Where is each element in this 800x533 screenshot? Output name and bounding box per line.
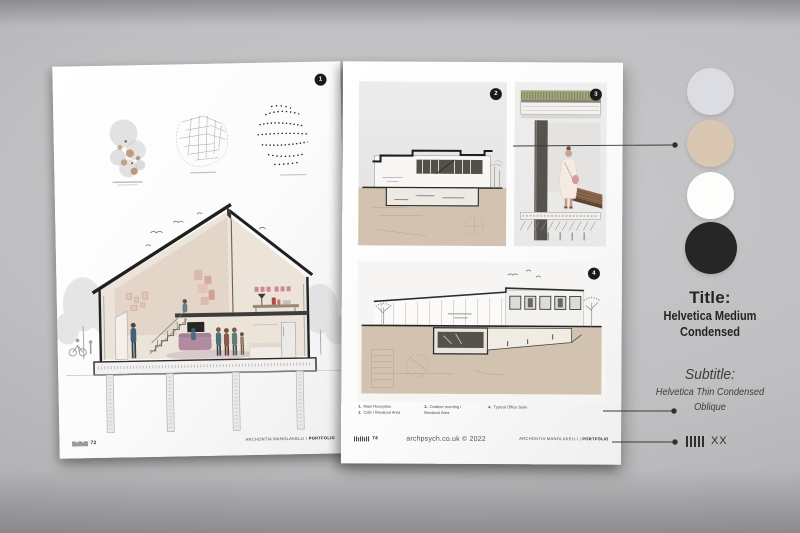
subtitle-spec-line1: Helvetica Thin Condensed xyxy=(644,385,776,400)
legend-column: 3.Outdoor meeting / Breakout Area xyxy=(424,405,465,417)
credit-divider: | xyxy=(579,437,580,441)
left-page-artwork xyxy=(52,61,347,458)
figure-badge-3-number: 3 xyxy=(594,92,597,98)
building-section-svg xyxy=(358,81,507,246)
drawing-legend: 1.Main Reception 2.Cafe / Breakout Area … xyxy=(358,404,547,423)
dot-map-diagram xyxy=(257,105,308,176)
figure-badge-3: 3 xyxy=(590,89,602,101)
credit-name: ARCHONTIA MANOLAKELLI xyxy=(519,437,578,441)
title-spec-heading: Title: xyxy=(645,288,775,308)
tally-bars-icon xyxy=(686,436,704,447)
credit-portfolio: PORTFOLIO xyxy=(308,436,334,441)
subtitle-spec-heading: Subtitle: xyxy=(641,366,779,383)
title-spec-block: Title: Helvetica Medium Condensed xyxy=(645,288,775,341)
right-page-credit: ARCHONTIA MANOLAKELLI | PORTFOLIO xyxy=(519,437,608,442)
panel-building-section: 2 xyxy=(358,81,507,246)
left-page-credit: ARCHONTIA MANOLAKELLI | PORTFOLIO xyxy=(245,436,334,442)
barcode-icon xyxy=(72,441,87,446)
color-swatch-lavender xyxy=(687,68,734,115)
house-section-drawing xyxy=(53,202,348,434)
right-page: 2 xyxy=(341,61,623,464)
page-marker-label: XX xyxy=(711,435,728,447)
balcony-detail-svg xyxy=(514,82,607,246)
right-page-footer: 74 archpsych.co.uk © 2022 ARCHONTIA MANO… xyxy=(341,435,621,442)
credit-name: ARCHONTIA MANOLAKELLI xyxy=(245,437,304,442)
color-swatch-white xyxy=(687,172,734,219)
figure-badge-2: 2 xyxy=(490,88,502,100)
bubble-map-diagram xyxy=(109,119,146,186)
title-spec-line1: Helvetica Medium xyxy=(653,308,767,324)
legend-item-4: 4.Typical Office Suite xyxy=(488,405,527,411)
subtitle-spec-line2: Oblique xyxy=(644,400,776,415)
credit-divider: | xyxy=(305,437,306,441)
subtitle-spec-block: Subtitle: Helvetica Thin Condensed Obliq… xyxy=(635,366,785,415)
figure-badge-1-number: 1 xyxy=(319,77,322,83)
legend-column: 1.Main Reception 2.Cafe / Breakout Area xyxy=(358,404,400,416)
panel-long-section: 4 xyxy=(357,261,606,402)
credit-portfolio: PORTFOLIO xyxy=(582,437,608,441)
title-spec-line2: Condensed xyxy=(653,324,767,340)
page-marker: XX xyxy=(686,435,728,447)
figure-badge-4: 4 xyxy=(588,268,600,280)
left-page-number: 72 xyxy=(90,440,96,446)
panel-balcony-detail: 3 xyxy=(514,82,607,246)
street-map-diagram xyxy=(176,115,228,173)
left-page: 1 72 ARCHONTIA MANOLAKELLI | PORTFOLIO xyxy=(52,61,347,458)
legend-column: 4.Typical Office Suite xyxy=(488,405,527,417)
figure-badge-2-number: 2 xyxy=(494,91,497,97)
legend-item-2: 2.Cafe / Breakout Area xyxy=(358,410,400,416)
portfolio-mockup: 1 72 ARCHONTIA MANOLAKELLI | PORTFOLIO xyxy=(0,0,800,533)
legend-item-3: 3.Outdoor meeting / Breakout Area xyxy=(424,405,465,417)
long-section-svg xyxy=(357,261,606,402)
color-swatch-beige xyxy=(687,120,734,167)
color-swatch-black xyxy=(685,222,737,274)
figure-badge-4-number: 4 xyxy=(592,271,595,277)
